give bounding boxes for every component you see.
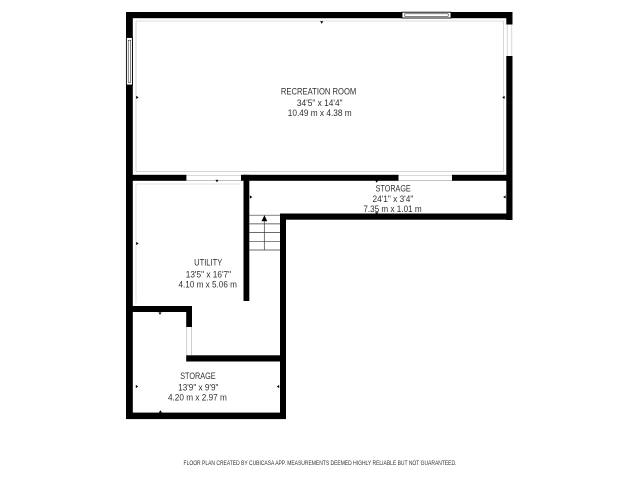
svg-text:13'5" x 16'7": 13'5" x 16'7" <box>186 269 231 279</box>
svg-text:7.35 m x 1.01 m: 7.35 m x 1.01 m <box>363 204 421 214</box>
svg-text:34'5" x 14'4": 34'5" x 14'4" <box>297 98 343 108</box>
svg-text:RECREATION ROOM: RECREATION ROOM <box>281 87 356 97</box>
svg-text:4.10 m x 5.06 m: 4.10 m x 5.06 m <box>179 280 237 290</box>
svg-text:10.49 m x 4.38 m: 10.49 m x 4.38 m <box>288 108 352 118</box>
svg-text:STORAGE: STORAGE <box>180 371 215 381</box>
svg-text:UTILITY: UTILITY <box>194 258 222 268</box>
svg-text:24'1" x 3'4": 24'1" x 3'4" <box>373 194 414 204</box>
svg-text:FLOOR PLAN CREATED BY CUBICASA: FLOOR PLAN CREATED BY CUBICASA APP. MEAS… <box>184 460 457 467</box>
svg-text:4.20 m x 2.97 m: 4.20 m x 2.97 m <box>168 393 227 403</box>
svg-text:13'9" x 9'9": 13'9" x 9'9" <box>178 382 218 392</box>
svg-text:STORAGE: STORAGE <box>376 184 411 194</box>
